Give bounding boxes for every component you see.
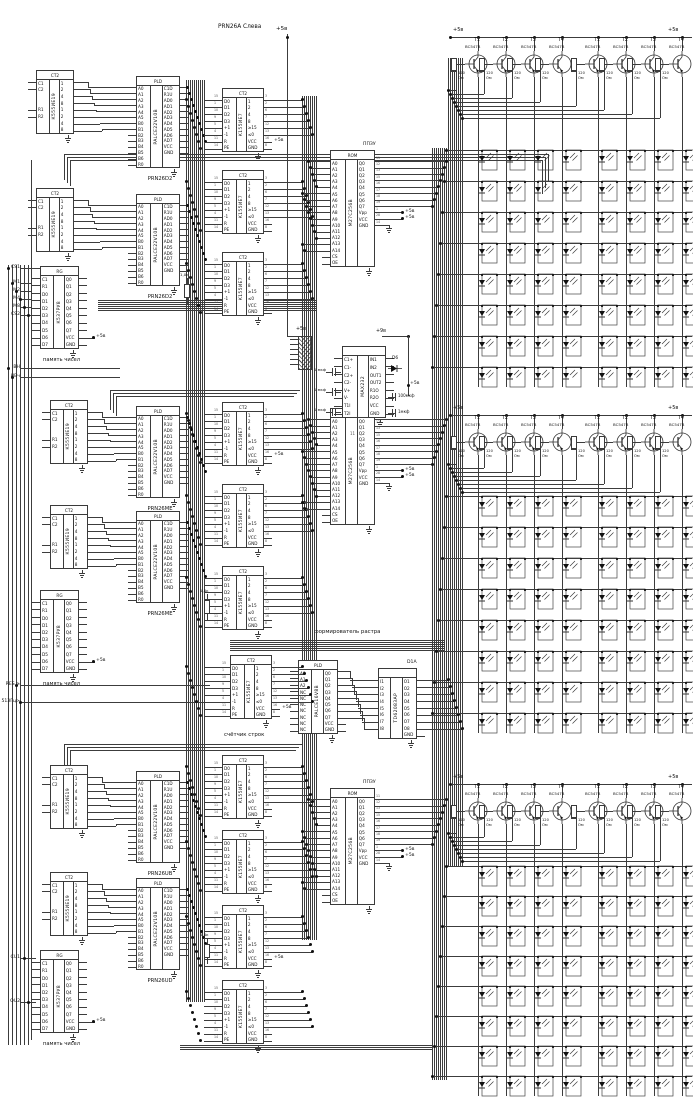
ground-icon bbox=[80, 470, 84, 471]
pin-number: 8 bbox=[265, 961, 267, 964]
signal-label-M8: M8 bbox=[1, 305, 20, 310]
wire bbox=[98, 117, 128, 118]
pin-number: 15 bbox=[214, 491, 218, 494]
wire bbox=[306, 464, 322, 465]
pin-stub bbox=[88, 426, 96, 427]
pin-stub bbox=[180, 824, 188, 825]
wire bbox=[204, 627, 214, 628]
wire bbox=[96, 812, 112, 813]
led bbox=[535, 589, 557, 611]
pin-number: 7 bbox=[265, 858, 267, 861]
pin-stub bbox=[32, 293, 40, 294]
wire bbox=[204, 877, 214, 878]
pin-stub bbox=[74, 235, 82, 236]
junction-dot bbox=[451, 840, 454, 843]
junction-dot bbox=[193, 290, 196, 293]
ground-icon bbox=[367, 531, 371, 532]
wire bbox=[207, 614, 208, 620]
wire bbox=[574, 818, 575, 819]
pin-label: D0 bbox=[223, 412, 236, 419]
pin-label: Q4 bbox=[65, 989, 78, 996]
junction-dot bbox=[193, 868, 196, 871]
pin-label: -1 bbox=[223, 527, 236, 534]
pin-label: +1 bbox=[223, 1017, 236, 1024]
pin-number: 4 bbox=[214, 608, 216, 611]
junction-dot bbox=[196, 234, 199, 237]
pin-stub bbox=[79, 992, 87, 993]
pin-stub bbox=[338, 718, 346, 719]
wire bbox=[110, 390, 300, 391]
pin-label: PE bbox=[223, 226, 236, 233]
ground-icon bbox=[171, 867, 177, 868]
led bbox=[627, 651, 649, 673]
junction-dot bbox=[185, 494, 188, 497]
junction-dot bbox=[451, 471, 454, 474]
pin-stub bbox=[128, 842, 136, 843]
pin-stub bbox=[322, 161, 330, 162]
junction-dot bbox=[303, 198, 306, 201]
led bbox=[599, 212, 621, 234]
pin-number: 11 bbox=[376, 795, 380, 798]
junction-dot bbox=[303, 922, 306, 925]
junction-dot bbox=[199, 229, 202, 232]
junction-dot bbox=[433, 836, 436, 839]
led bbox=[563, 1016, 585, 1038]
pin-stub bbox=[32, 984, 40, 985]
pin-label: OUT2 bbox=[369, 379, 385, 387]
pin-stub bbox=[180, 241, 188, 242]
resistor-value: Ом bbox=[486, 824, 492, 828]
pin-label: PE bbox=[223, 458, 236, 465]
pin-stub bbox=[322, 831, 330, 832]
pin-label: C1 bbox=[51, 882, 63, 889]
ground-icon bbox=[257, 242, 259, 243]
pin-stub bbox=[322, 438, 330, 439]
led bbox=[563, 1076, 585, 1098]
wire bbox=[204, 100, 214, 101]
junction-dot bbox=[433, 198, 436, 201]
led bbox=[683, 866, 693, 888]
pin-stub bbox=[322, 496, 330, 497]
ground-icon bbox=[255, 552, 261, 553]
pin-stub bbox=[74, 89, 82, 90]
pin-label bbox=[163, 963, 179, 969]
led bbox=[535, 181, 557, 203]
led bbox=[599, 682, 621, 704]
ground-icon bbox=[255, 470, 261, 471]
led bbox=[535, 926, 557, 948]
led bbox=[535, 305, 557, 327]
power-label: +5в bbox=[405, 848, 414, 853]
pin-number: 11 bbox=[214, 301, 218, 304]
pin-label: VCC bbox=[247, 302, 263, 309]
junction-dot bbox=[192, 104, 195, 107]
led bbox=[479, 713, 501, 735]
pin-label bbox=[37, 211, 49, 218]
pin-label: 1 bbox=[247, 840, 263, 847]
wire bbox=[454, 58, 455, 866]
wire bbox=[272, 128, 310, 129]
led bbox=[507, 956, 529, 978]
led bbox=[599, 1046, 621, 1068]
pin-label: GND bbox=[247, 886, 263, 893]
pin-label: 8 bbox=[74, 795, 87, 802]
pin-number: 18 bbox=[376, 195, 380, 198]
led bbox=[627, 956, 649, 978]
pin-label: Q7 bbox=[65, 650, 78, 657]
diode-label: D6 bbox=[392, 357, 398, 361]
resistor-value: Ом bbox=[606, 824, 612, 828]
junction-dot bbox=[301, 990, 304, 993]
wire bbox=[383, 470, 403, 471]
pin-stub bbox=[74, 228, 82, 229]
pin-stub bbox=[28, 200, 36, 201]
transistor-part: BC547B bbox=[493, 423, 508, 427]
junction-dot bbox=[443, 180, 446, 183]
wire bbox=[230, 648, 445, 649]
pin-number: 3 bbox=[265, 409, 267, 412]
pin-stub bbox=[128, 165, 136, 166]
pin-number: 5 bbox=[222, 690, 224, 693]
pin-stub bbox=[338, 691, 346, 692]
junction-dot bbox=[197, 304, 200, 307]
pin-label: IN2 bbox=[369, 364, 385, 372]
junction-dot bbox=[309, 475, 312, 478]
pin-stub bbox=[338, 678, 346, 679]
wire bbox=[310, 219, 322, 220]
wire bbox=[116, 564, 128, 565]
chip-header: CT2 bbox=[223, 485, 263, 494]
wire bbox=[207, 958, 208, 964]
wire bbox=[114, 558, 128, 559]
pin-label bbox=[51, 895, 63, 902]
junction-dot bbox=[433, 1045, 436, 1048]
led bbox=[507, 558, 529, 580]
chip-name: М27С256В bbox=[349, 199, 354, 226]
wire bbox=[383, 831, 436, 832]
pin-stub bbox=[42, 784, 50, 785]
led bbox=[683, 150, 693, 172]
pin-number: 5 bbox=[214, 1015, 216, 1018]
pin-number: 2 bbox=[265, 266, 267, 269]
pin-stub bbox=[128, 217, 136, 218]
junction-dot bbox=[305, 112, 308, 115]
wire bbox=[454, 818, 455, 819]
led bbox=[563, 926, 585, 948]
junction-dot bbox=[447, 89, 450, 92]
junction-dot bbox=[195, 215, 198, 218]
pin-stub bbox=[32, 617, 40, 618]
junction-dot bbox=[196, 918, 199, 921]
pin-label: D3 bbox=[223, 596, 236, 603]
junction-dot bbox=[311, 224, 314, 227]
pin-label: R0 bbox=[137, 279, 150, 285]
pin-number: 3 bbox=[265, 177, 267, 180]
wire bbox=[204, 299, 214, 300]
pin-number: 7 bbox=[265, 594, 267, 597]
pin-number: 5 bbox=[214, 790, 216, 793]
wire bbox=[364, 729, 370, 730]
pin-stub bbox=[180, 564, 188, 565]
pin-stub bbox=[370, 708, 378, 709]
wire bbox=[272, 788, 308, 789]
wire bbox=[450, 837, 484, 838]
pin-label: 4 bbox=[247, 507, 263, 514]
pin-label: D6 bbox=[41, 1018, 53, 1025]
led bbox=[507, 496, 529, 518]
junction-dot bbox=[197, 454, 200, 457]
pin-label: 2 bbox=[74, 782, 87, 789]
led bbox=[683, 367, 693, 389]
chip-PALCE22V10B: PLDA0A1A2A3A4A5B0B1B2B3B4B5B6R0PALCE22V1… bbox=[136, 406, 180, 498]
junction-dot bbox=[92, 336, 95, 339]
junction-dot bbox=[200, 563, 203, 566]
led bbox=[599, 896, 621, 918]
chip-header: CT2 bbox=[37, 189, 73, 198]
pin-label: +1 bbox=[223, 792, 236, 799]
pin-number: 4 bbox=[214, 1022, 216, 1025]
pin-label: GND bbox=[65, 1025, 78, 1032]
junction-dot bbox=[191, 686, 194, 689]
wire bbox=[116, 459, 128, 460]
junction-dot bbox=[15, 290, 18, 293]
led bbox=[655, 305, 677, 327]
junction-dot bbox=[192, 222, 195, 225]
junction-dot bbox=[23, 306, 26, 309]
junction-dot bbox=[301, 243, 304, 246]
pin-stub bbox=[417, 722, 425, 723]
wire bbox=[383, 419, 446, 420]
wire bbox=[96, 524, 104, 525]
wire bbox=[602, 818, 603, 819]
pin-label: 2 bbox=[247, 922, 263, 929]
ground-icon bbox=[256, 322, 260, 323]
pin-number: 11 bbox=[214, 533, 218, 536]
junction-dot bbox=[301, 450, 304, 453]
wire bbox=[383, 187, 438, 188]
pin-label: -1 bbox=[223, 131, 236, 138]
power-label: +5в bbox=[296, 328, 306, 333]
led bbox=[599, 150, 621, 172]
pin-label: R2 bbox=[51, 808, 63, 815]
pin-label: R1 bbox=[51, 542, 63, 549]
wire bbox=[96, 566, 116, 567]
wire bbox=[188, 80, 189, 1002]
pin-number: 8 bbox=[265, 144, 267, 147]
pin-stub bbox=[180, 223, 188, 224]
wire bbox=[460, 114, 632, 115]
ground-icon bbox=[368, 275, 370, 276]
led bbox=[507, 651, 529, 673]
wire bbox=[280, 695, 310, 696]
pin-label: D7 bbox=[41, 665, 53, 672]
pin-stub bbox=[128, 489, 136, 490]
pin-stub bbox=[180, 135, 188, 136]
pin-stub bbox=[32, 338, 40, 339]
pin-stub bbox=[290, 724, 298, 725]
led bbox=[683, 713, 693, 735]
wire bbox=[204, 545, 214, 546]
pin-stub bbox=[180, 588, 188, 589]
pin-number: 6 bbox=[265, 851, 267, 854]
wire bbox=[456, 849, 576, 850]
ground-icon bbox=[80, 835, 84, 836]
junction-dot bbox=[197, 536, 200, 539]
wire bbox=[272, 114, 306, 115]
chip-name: К555ИЕ19 bbox=[52, 211, 57, 238]
junction-dot bbox=[437, 823, 440, 826]
wire bbox=[82, 207, 90, 208]
junction-dot bbox=[189, 590, 192, 593]
pin-stub bbox=[128, 812, 136, 813]
junction-dot bbox=[309, 440, 312, 443]
pin-number: 4 bbox=[222, 697, 224, 700]
pin-number: 1 bbox=[376, 208, 378, 211]
chip-header: CT2 bbox=[223, 981, 263, 990]
junction-dot bbox=[301, 412, 304, 415]
wire bbox=[312, 174, 322, 175]
pin-stub bbox=[180, 812, 188, 813]
led bbox=[479, 243, 501, 265]
wire bbox=[383, 451, 436, 452]
pin-label: D0 bbox=[223, 98, 236, 105]
wire bbox=[204, 182, 214, 183]
wire bbox=[425, 680, 448, 681]
chip-М27С256В: ROMA0A1A2A3A4A5A6A7A8A9A10A11A12A13A14CS… bbox=[330, 150, 375, 267]
junction-dot bbox=[447, 832, 450, 835]
ground-icon bbox=[257, 902, 259, 903]
pin-label: D3 bbox=[231, 685, 244, 692]
pin-number: 16 bbox=[265, 954, 269, 957]
capacitor-label: 1мкф bbox=[398, 410, 409, 414]
resistor-value: Ом bbox=[542, 824, 548, 828]
pin-stub bbox=[417, 729, 425, 730]
pin-number: 16 bbox=[376, 820, 380, 823]
pin-label: 8 bbox=[247, 785, 263, 792]
pin-label: PE bbox=[223, 308, 236, 315]
chip-К155ИЕ7: CT2D0D1D2D3+1-1RPEК155ИЕ71248≥15≤0VCCGND bbox=[222, 905, 264, 969]
pin-stub bbox=[264, 313, 272, 314]
pin-label: 8 bbox=[247, 118, 263, 125]
ground-icon bbox=[172, 292, 176, 293]
led bbox=[535, 558, 557, 580]
junction-dot bbox=[199, 311, 202, 314]
pin-stub bbox=[322, 193, 330, 194]
junction-dot bbox=[193, 208, 196, 211]
pin-stub bbox=[180, 423, 188, 424]
wire bbox=[116, 931, 128, 932]
chip-header: PLD bbox=[137, 407, 179, 416]
wire bbox=[632, 818, 633, 857]
pin-stub bbox=[32, 330, 40, 331]
wire bbox=[576, 818, 577, 849]
pin-label: PE bbox=[223, 961, 236, 968]
pin-label: 4 bbox=[247, 425, 263, 432]
pin-label: R2O bbox=[369, 394, 385, 402]
pin-stub bbox=[128, 854, 136, 855]
pin-label: R bbox=[223, 138, 236, 145]
led bbox=[655, 1046, 677, 1068]
pin-label bbox=[358, 260, 374, 266]
pin-label: VCC bbox=[65, 658, 78, 665]
wire bbox=[272, 924, 304, 925]
wire bbox=[204, 938, 214, 939]
pin-number: 15 bbox=[222, 662, 226, 665]
led bbox=[507, 620, 529, 642]
eprom-designator: ППЗУ bbox=[363, 143, 376, 148]
wire bbox=[272, 802, 312, 803]
junction-dot bbox=[437, 185, 440, 188]
led bbox=[683, 274, 693, 296]
wire bbox=[660, 71, 661, 118]
chip-name: К155ИЕ7 bbox=[239, 780, 244, 803]
wire bbox=[110, 441, 128, 442]
pin-stub bbox=[79, 323, 87, 324]
pin-label bbox=[51, 902, 63, 909]
led bbox=[563, 713, 585, 735]
chip-name: К537РУ8 bbox=[57, 301, 62, 324]
junction-dot bbox=[195, 1025, 198, 1028]
led bbox=[535, 336, 557, 358]
led bbox=[627, 243, 649, 265]
wire bbox=[82, 124, 100, 125]
led bbox=[479, 896, 501, 918]
pin-stub bbox=[322, 458, 330, 459]
wire bbox=[392, 409, 393, 417]
schematic-title: PRN26A Слева bbox=[218, 25, 261, 31]
junction-dot bbox=[307, 469, 310, 472]
pin-stub bbox=[370, 701, 378, 702]
chip-name: TD62083AP bbox=[394, 693, 399, 723]
pin-stub bbox=[128, 907, 136, 908]
junction-dot bbox=[313, 488, 316, 491]
resistor-label: 1,0к bbox=[180, 273, 189, 277]
pin-stub bbox=[88, 784, 96, 785]
led bbox=[479, 558, 501, 580]
ground-icon bbox=[255, 634, 261, 635]
pin-label: R1 bbox=[37, 225, 49, 232]
pin-number: 1 bbox=[214, 769, 216, 772]
junction-dot bbox=[195, 875, 198, 878]
wire bbox=[272, 1013, 308, 1014]
signal-label-: ВН bbox=[1, 366, 20, 371]
junction-dot bbox=[7, 267, 10, 270]
pin-number: 10 bbox=[214, 423, 218, 426]
led bbox=[683, 336, 693, 358]
junction-dot bbox=[441, 173, 444, 176]
led bbox=[535, 527, 557, 549]
power-label: +5в bbox=[405, 474, 414, 479]
wire bbox=[460, 58, 461, 866]
wire bbox=[332, 368, 333, 376]
pin-number: 6 bbox=[265, 109, 267, 112]
pin-stub bbox=[180, 93, 188, 94]
wire bbox=[108, 907, 128, 908]
pin-label: R bbox=[223, 534, 236, 541]
pin-number: 11 bbox=[214, 954, 218, 957]
pin-stub bbox=[180, 528, 188, 529]
pin-label: OE bbox=[331, 518, 345, 524]
wire bbox=[541, 442, 549, 443]
pin-stub bbox=[180, 153, 188, 154]
pin-stub bbox=[290, 678, 298, 679]
pin-number: 10 bbox=[214, 587, 218, 590]
junction-dot bbox=[311, 173, 314, 176]
pin-number: 6 bbox=[273, 676, 275, 679]
led bbox=[683, 926, 693, 948]
pin-stub bbox=[128, 87, 136, 88]
wire bbox=[574, 71, 575, 72]
